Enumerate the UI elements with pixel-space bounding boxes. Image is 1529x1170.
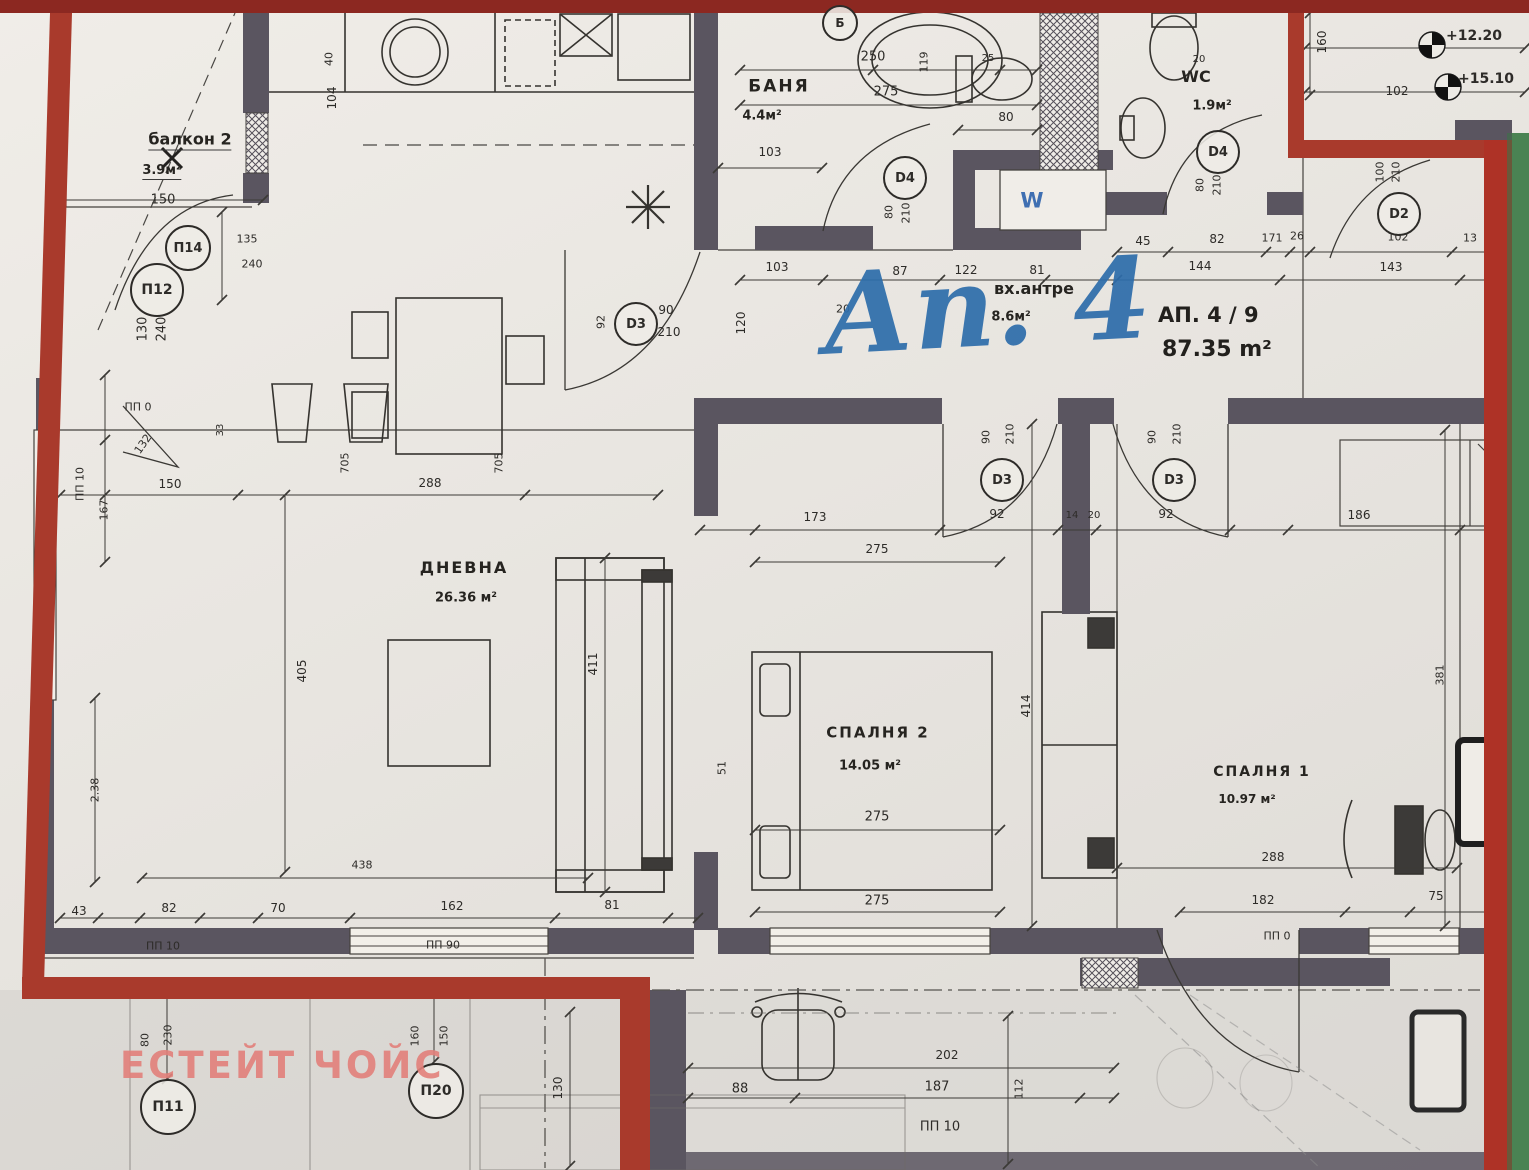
lower-right-window-frame [1412,1012,1464,1110]
apartment-total-area: 87.35 m² [1162,337,1272,362]
agency-watermark: ЕСТЕЙТ ЧОЙС [120,1044,445,1087]
floor-plan-drawing [0,0,1529,1170]
apartment-title-script: Ап. 4 [819,230,1205,381]
elevation-benchmark-symbols [1419,32,1461,100]
floor-plan: балкон 23.9м²БАНЯ4.4м²WC1.9м²вх.антре8.6… [0,0,1529,1170]
apartment-number: АП. 4 / 9 [1158,303,1259,327]
green-edge-shadow [1507,133,1512,1170]
furniture [268,12,1455,1080]
faded-lower-right-zone [640,990,1512,1170]
green-edge-strip [1512,133,1529,1170]
